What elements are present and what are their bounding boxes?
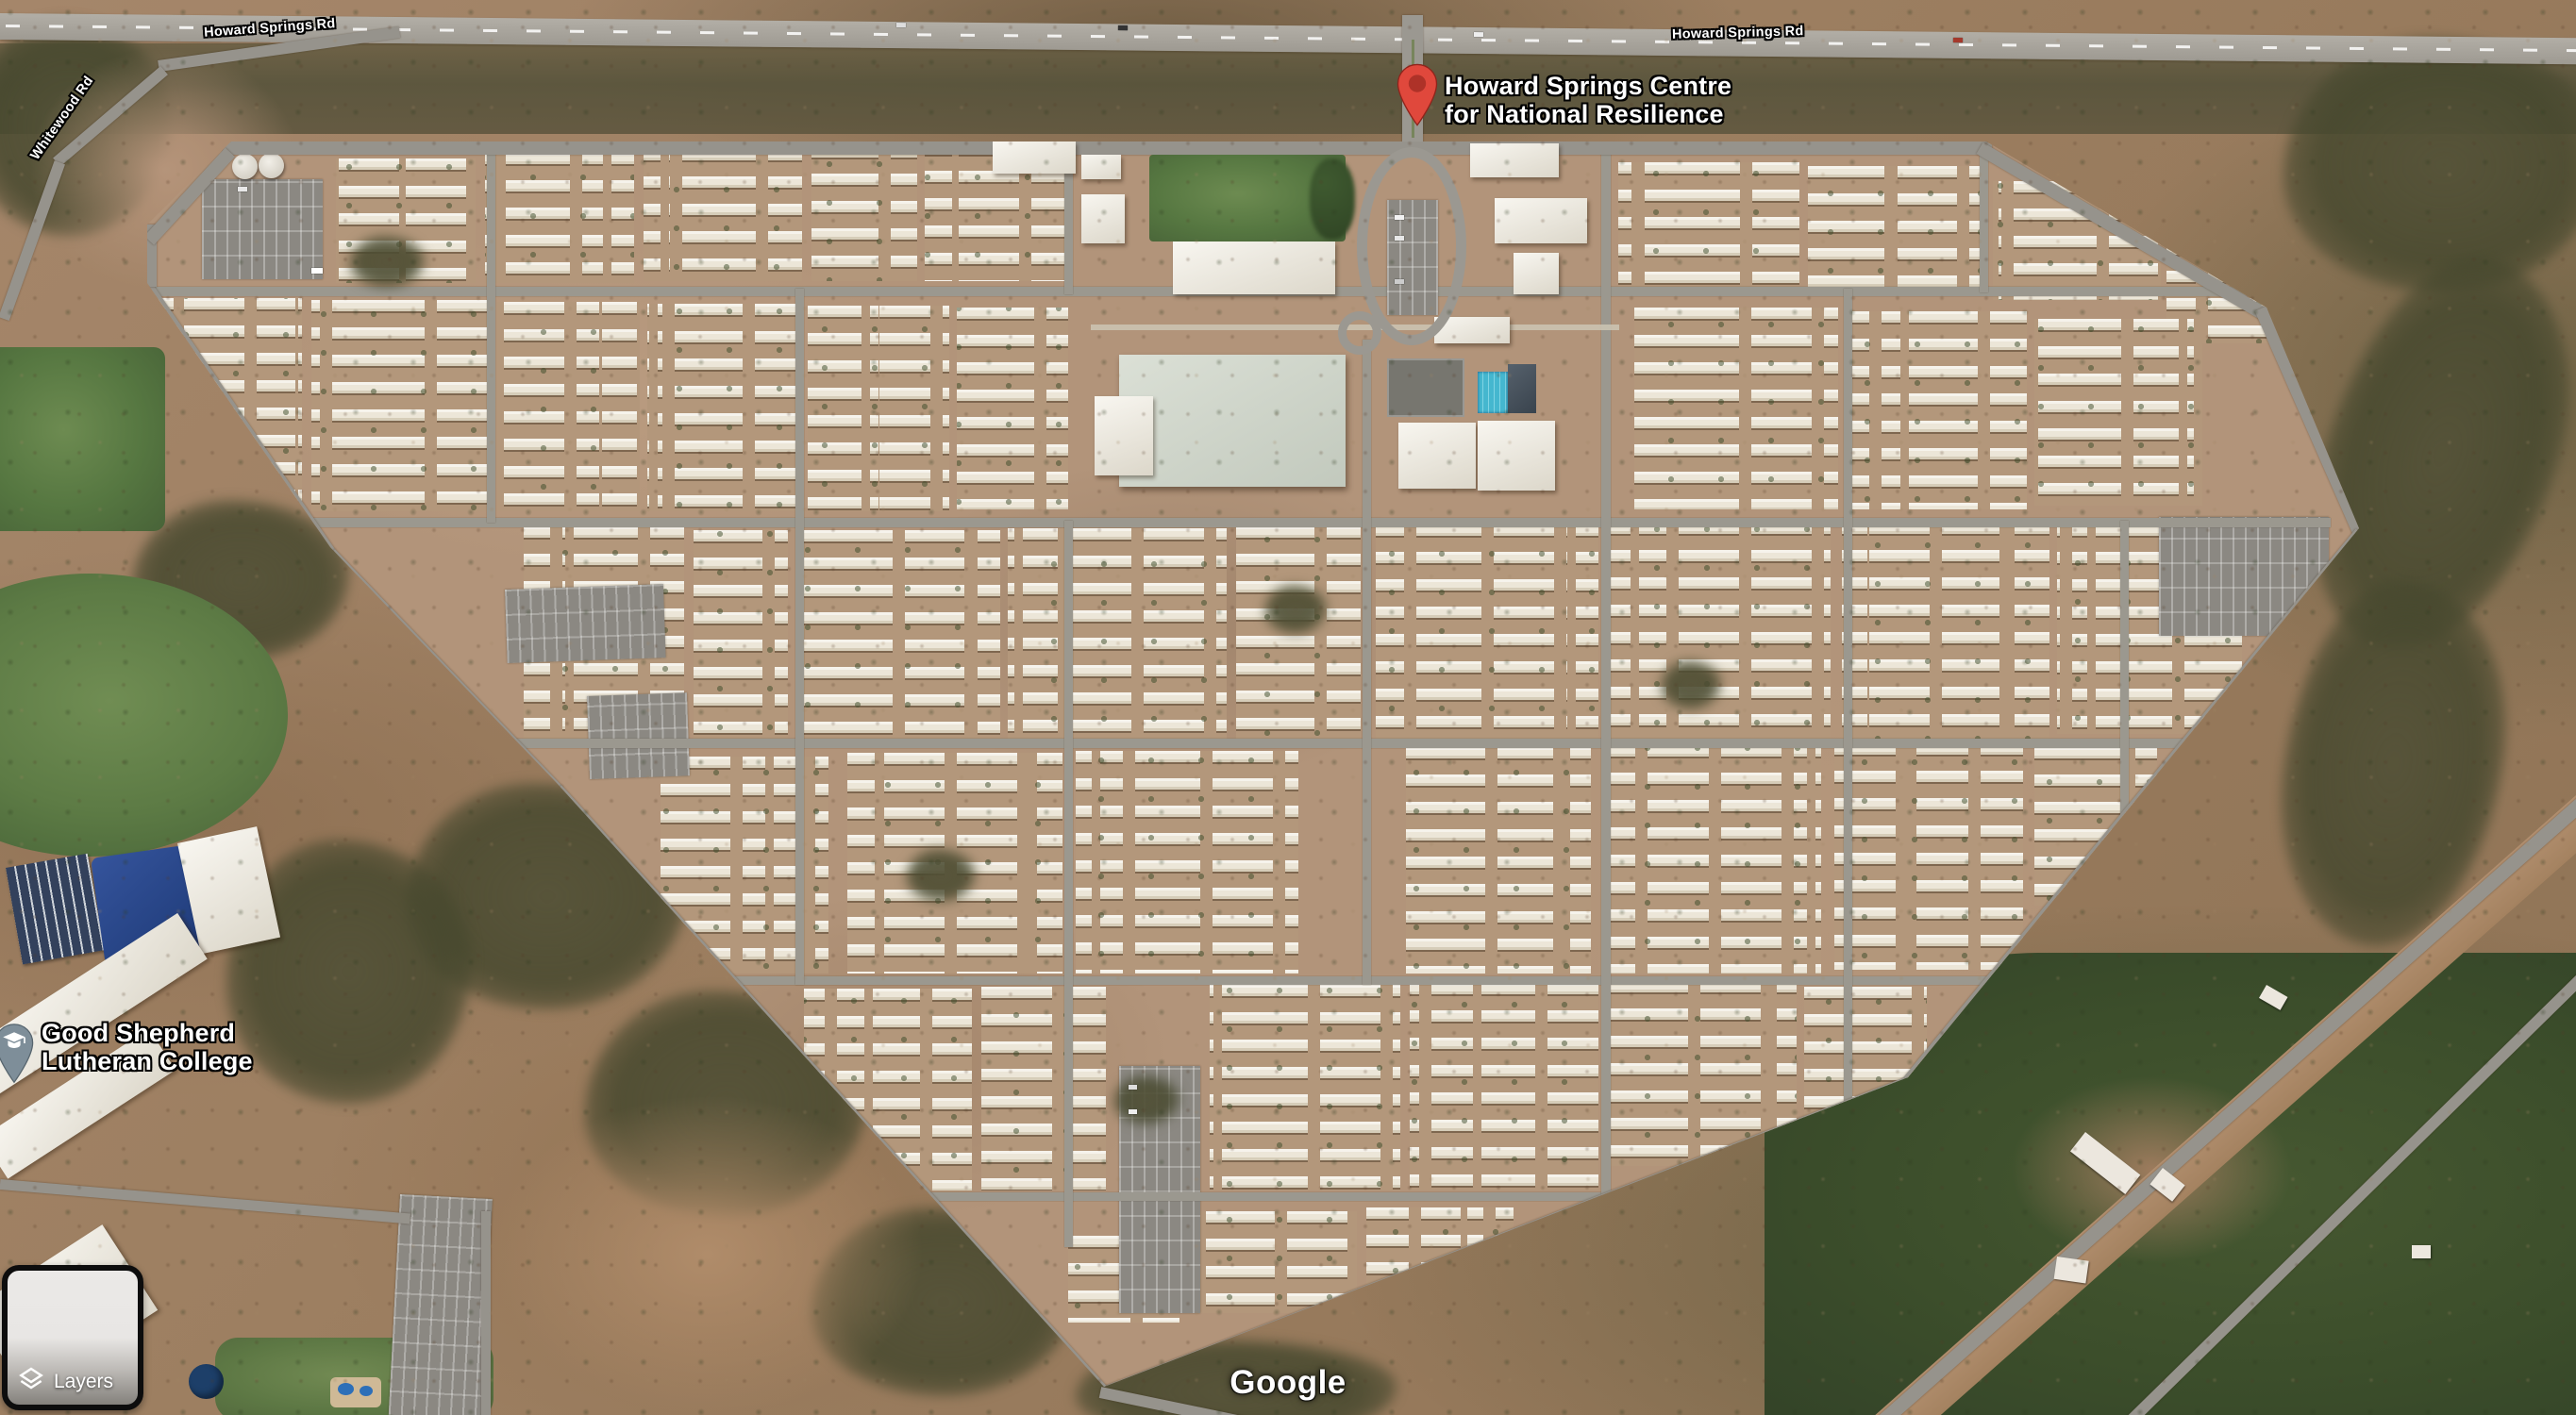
poi-label-good-shepherd-college[interactable]: Good Shepherd Lutheran College bbox=[42, 1019, 253, 1075]
poi-label-line1: Good Shepherd bbox=[42, 1019, 253, 1047]
satellite-map-viewport[interactable]: Howard Springs Rd Howard Springs Rd Whit… bbox=[0, 0, 2576, 1415]
layers-icon bbox=[17, 1365, 45, 1393]
layers-button-label: Layers bbox=[54, 1371, 113, 1393]
poi-label-line2: Lutheran College bbox=[42, 1047, 253, 1075]
road-label-whitewood-rd: Whitewood Rd bbox=[27, 74, 96, 163]
label-overlay: Howard Springs Rd Howard Springs Rd Whit… bbox=[0, 0, 2576, 1415]
road-label-howard-springs-rd-east: Howard Springs Rd bbox=[1672, 24, 1804, 42]
poi-label-line2: for National Resilience bbox=[1445, 100, 1731, 128]
red-place-pin-icon[interactable] bbox=[1396, 62, 1439, 128]
poi-label-line1: Howard Springs Centre bbox=[1445, 72, 1731, 100]
school-pin-icon[interactable] bbox=[0, 1023, 35, 1085]
layers-button[interactable]: Layers bbox=[2, 1265, 143, 1410]
road-label-howard-springs-rd-west: Howard Springs Rd bbox=[204, 16, 336, 41]
poi-label-howard-springs-centre[interactable]: Howard Springs Centre for National Resil… bbox=[1445, 72, 1731, 128]
google-logo[interactable]: Google bbox=[1229, 1364, 1347, 1402]
